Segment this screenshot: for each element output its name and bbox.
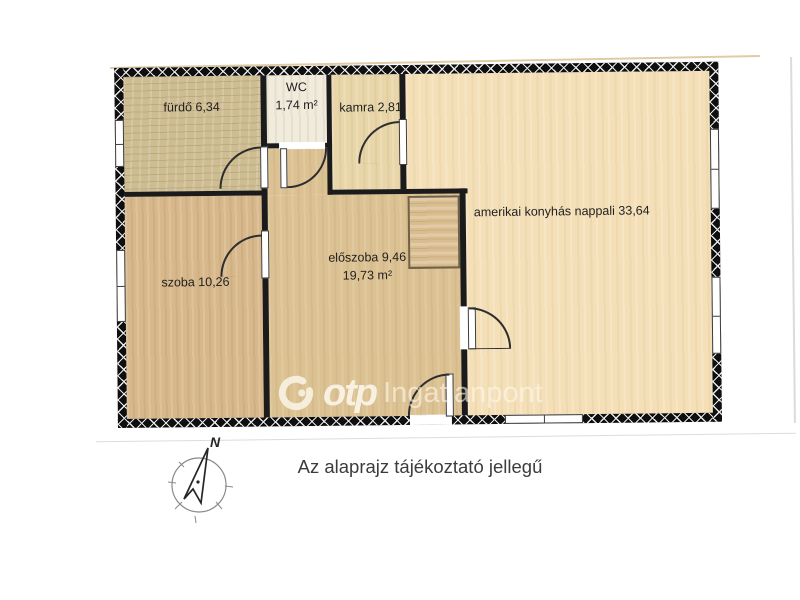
- room-nappali-strip: [405, 73, 467, 189]
- compass-north-label: N: [210, 434, 221, 450]
- window-szoba: [116, 250, 126, 322]
- room-label-wc-name: WC: [264, 78, 328, 97]
- room-label-eloszoba: előszoba 9,46 19,73 m²: [297, 248, 437, 285]
- window-mullion: [118, 286, 125, 287]
- watermark: otp Ingatlanpont: [276, 371, 543, 415]
- window-nappali-bottom: [505, 414, 583, 424]
- window-furdo: [115, 120, 124, 167]
- compass-icon: N: [152, 430, 262, 540]
- window-mullion: [116, 144, 123, 145]
- room-szoba: [125, 195, 264, 418]
- room-label-eloszoba-name: előszoba 9,46: [297, 248, 437, 267]
- window-mullion: [711, 169, 718, 170]
- room-label-nappali: amerikai konyhás nappali 33,64: [462, 201, 662, 221]
- window-nappali-right-lower: [711, 277, 721, 354]
- floorplan-canvas: fürdő 6,34 WC 1,74 m² kamra 2,81 amerika…: [0, 0, 800, 600]
- room-nappali: [464, 71, 713, 416]
- scan-artifact-right-line: [790, 57, 796, 423]
- room-label-kamra: kamra 2,81: [315, 98, 427, 117]
- window-nappali-right-upper: [710, 129, 720, 209]
- window-mullion: [544, 416, 545, 423]
- room-label-eloszoba-area: 19,73 m²: [297, 266, 437, 285]
- room-label-furdo: fürdő 6,34: [125, 98, 259, 117]
- disclaimer-note: Az alaprajz tájékoztató jellegű: [250, 456, 590, 478]
- room-label-szoba: szoba 10,26: [126, 272, 264, 291]
- watermark-brand: otp: [323, 373, 376, 413]
- window-mullion: [713, 316, 720, 317]
- watermark-name: Ingatlanpont: [383, 373, 543, 413]
- otp-logo-icon: [276, 373, 316, 413]
